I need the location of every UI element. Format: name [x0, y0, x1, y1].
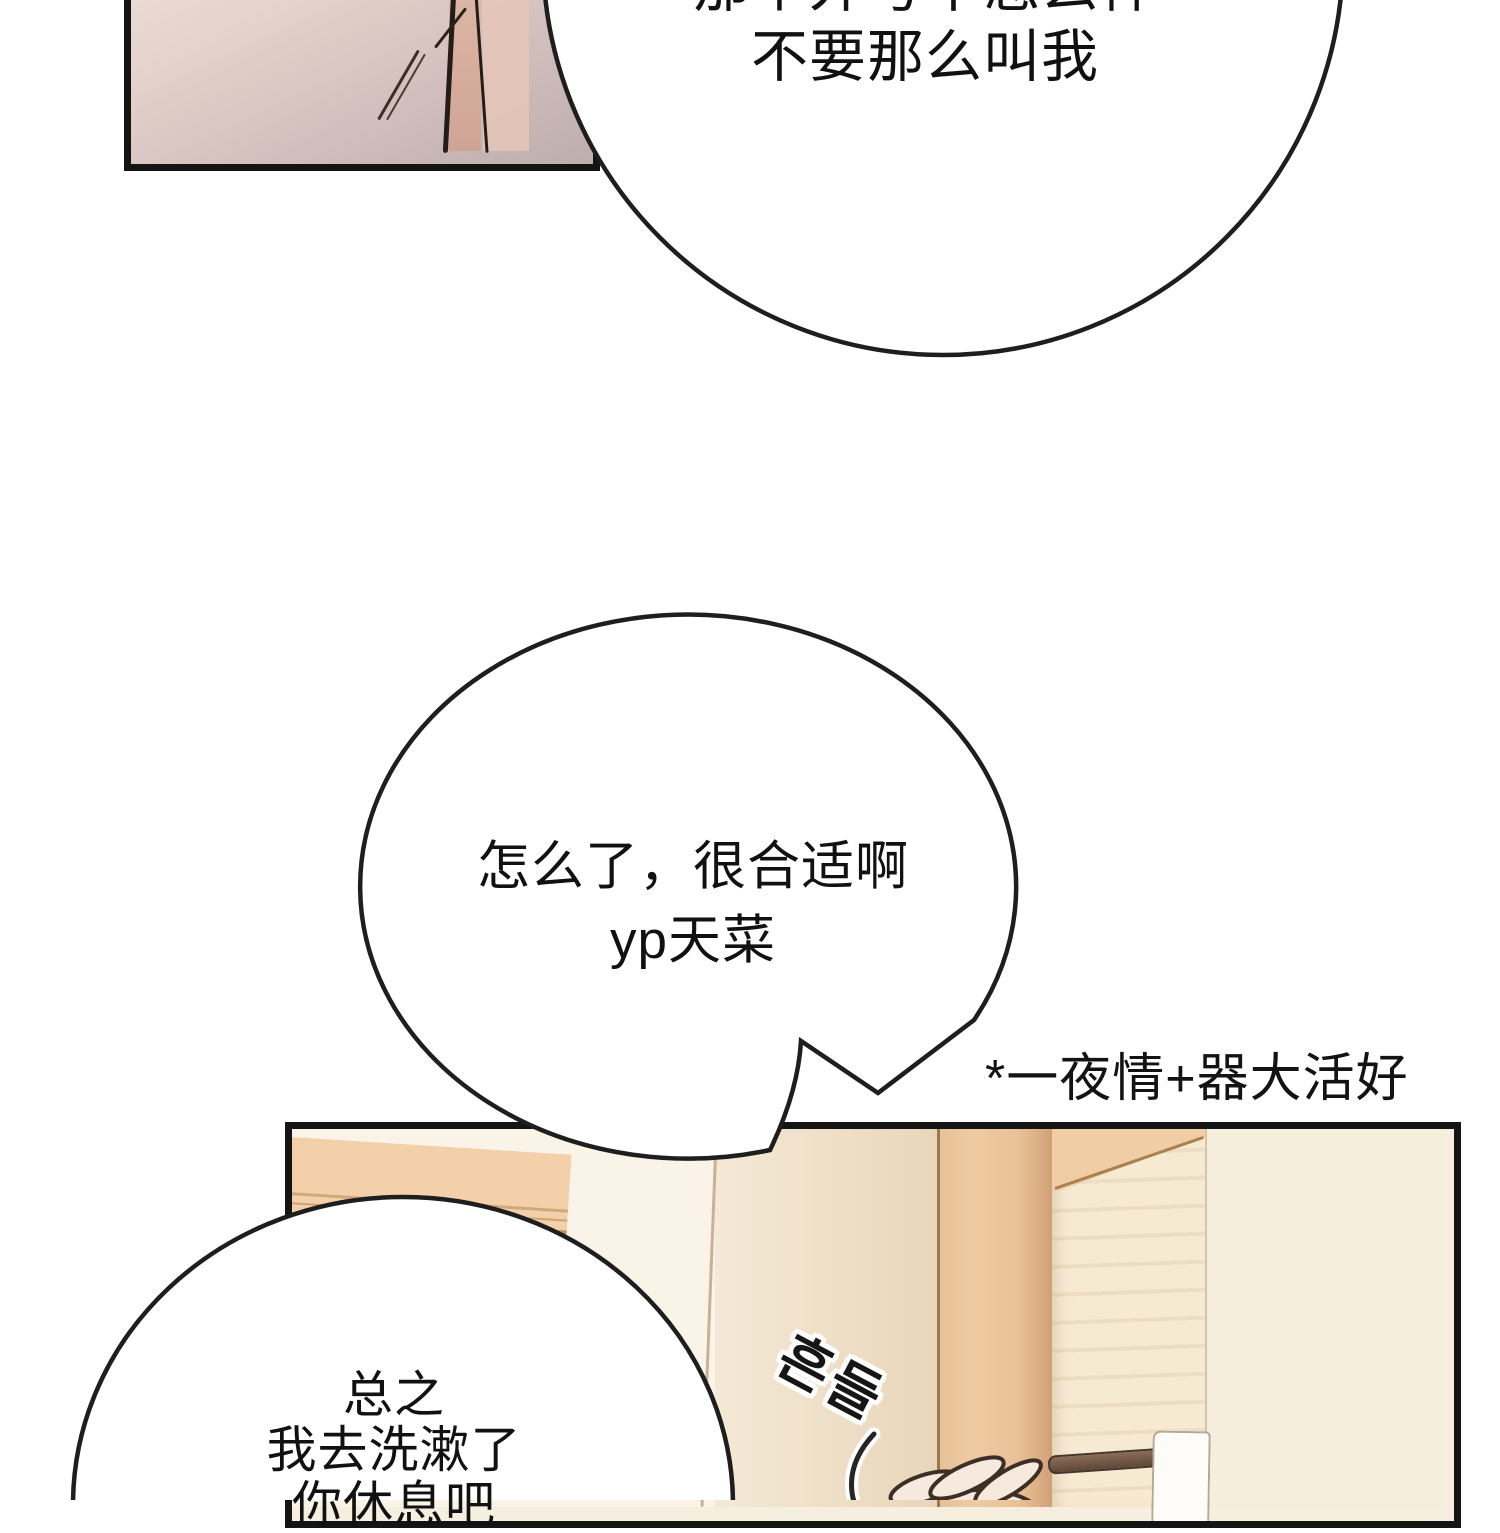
wall-middle	[715, 1129, 937, 1507]
bottom-bubble-line-3: 你休息吧	[267, 1478, 522, 1533]
comic-page: { "bubbles": { "top": { "lines": ["那个外号不…	[0, 0, 1500, 1500]
bottom-bubble-text: 总之 我去洗漱了 你休息吧	[267, 1368, 522, 1533]
skin-highlight-band	[483, 0, 529, 151]
door-jamb	[937, 1129, 1052, 1507]
top-bubble-line-1: 那个外号不怎么样	[693, 0, 1157, 22]
bottom-bubble-line-2: 我去洗漱了	[267, 1423, 522, 1478]
top-bubble-text: 那个外号不怎么样 不要那么叫我	[693, 0, 1157, 92]
middle-bubble-line-1: 怎么了，很合适啊	[477, 830, 909, 904]
panel-neck-closeup	[124, 0, 600, 171]
translator-note: *一夜情+器大活好	[985, 1036, 1409, 1111]
towel	[1151, 1431, 1211, 1524]
bottom-bubble-line-1: 总之	[267, 1368, 522, 1423]
top-bubble-line-2: 不要那么叫我	[693, 22, 1157, 92]
middle-bubble-line-2: yp天菜	[477, 904, 909, 978]
collarbone-stroke-1	[377, 50, 420, 121]
door-lintel-moulding-2	[286, 1202, 568, 1222]
wall-right	[1205, 1129, 1442, 1507]
collarbone-stroke-2	[386, 54, 426, 121]
door-lintel-moulding-1	[286, 1192, 568, 1213]
middle-bubble-text: 怎么了，很合适啊 yp天菜	[477, 830, 909, 978]
